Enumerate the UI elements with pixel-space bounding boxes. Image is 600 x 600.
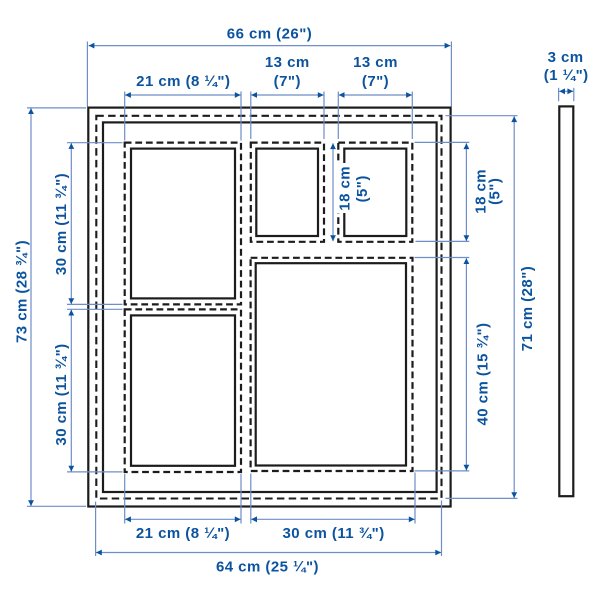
svg-text:64 cm (25 ¼"): 64 cm (25 ¼") (216, 559, 319, 576)
svg-text:3 cm: 3 cm (548, 49, 584, 66)
svg-text:(7"): (7") (362, 73, 389, 90)
svg-text:13 cm: 13 cm (265, 54, 310, 71)
svg-text:(5"): (5") (486, 178, 503, 205)
svg-text:21 cm (8 ¼"): 21 cm (8 ¼") (136, 73, 230, 90)
svg-text:13 cm: 13 cm (353, 54, 398, 71)
svg-text:66 cm (26"): 66 cm (26") (227, 25, 312, 42)
svg-text:(1 ¼"): (1 ¼") (544, 67, 589, 84)
svg-text:21 cm (8 ¼"): 21 cm (8 ¼") (136, 525, 230, 542)
svg-text:71 cm (28"): 71 cm (28") (519, 266, 536, 351)
svg-text:30 cm (11 ¾"): 30 cm (11 ¾") (283, 525, 385, 542)
svg-text:40 cm (15 ¾"): 40 cm (15 ¾") (475, 322, 492, 425)
svg-text:30 cm (11 ¾"): 30 cm (11 ¾") (53, 173, 70, 275)
svg-text:(7"): (7") (274, 73, 301, 90)
svg-text:73 cm (28 ¾"): 73 cm (28 ¾") (13, 240, 30, 343)
svg-text:18 cm: 18 cm (337, 166, 354, 211)
svg-text:30 cm (11 ¾"): 30 cm (11 ¾") (53, 343, 70, 445)
svg-text:(5"): (5") (354, 175, 371, 202)
